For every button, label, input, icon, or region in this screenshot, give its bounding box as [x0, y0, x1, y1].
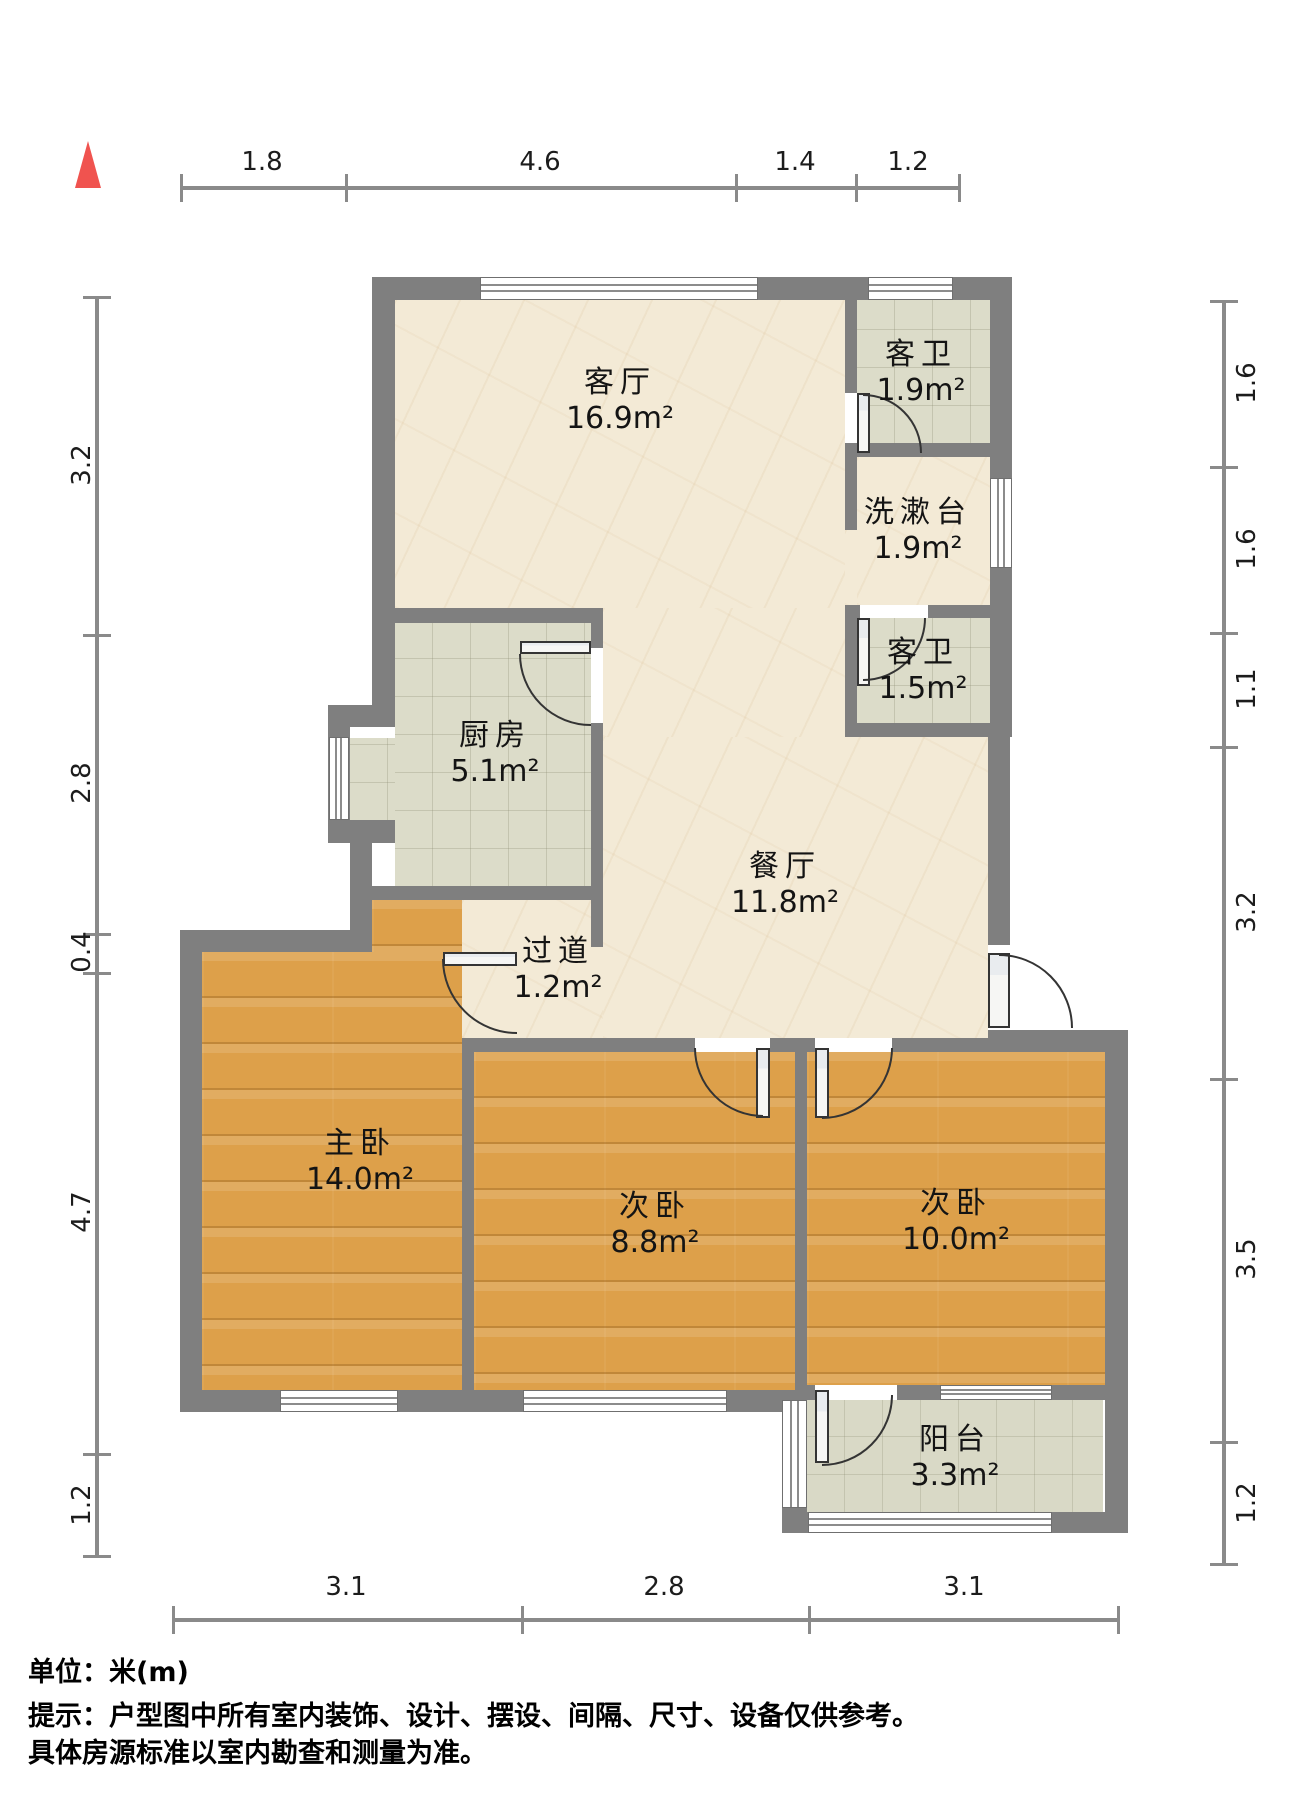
window-bath-top — [868, 277, 953, 300]
dim-tick — [958, 174, 961, 202]
dim-label-bottom: 3.1 — [311, 1572, 381, 1602]
room-area: 14.0m² — [250, 1163, 470, 1197]
dim-label-left: 4.7 — [67, 1177, 97, 1247]
room-area: 1.5m² — [813, 672, 1033, 706]
room-label-balcony: 阳台 3.3m² — [845, 1421, 1065, 1493]
wall-left-upper — [372, 277, 395, 727]
floor-dining-upper — [603, 608, 845, 737]
room-label-bath-mid: 客卫 1.5m² — [813, 634, 1033, 706]
wall-bath-mid-top-a — [845, 605, 860, 618]
dim-tick — [1210, 746, 1238, 749]
room-area: 8.8m² — [545, 1226, 765, 1260]
wall-bath-mid-bottom — [845, 723, 1012, 737]
room-label-bath-top: 客卫 1.9m² — [811, 336, 1031, 408]
dim-tick — [855, 174, 858, 202]
room-name: 阳台 — [845, 1421, 1065, 1459]
dim-label-left: 0.4 — [67, 917, 97, 987]
dim-tick — [83, 634, 111, 637]
room-name: 客厅 — [510, 364, 730, 402]
window-bed2-bottom — [523, 1390, 727, 1412]
dim-tick — [1210, 1563, 1238, 1566]
dim-label-left: 2.8 — [67, 748, 97, 818]
dim-tick — [83, 296, 111, 299]
window-kitchen-bay — [329, 737, 349, 820]
wall-kitchen-right-upper — [591, 608, 603, 648]
dim-tick — [1210, 466, 1238, 469]
dim-tick — [1117, 1606, 1120, 1634]
wall-left-mid — [350, 820, 372, 930]
window-living-top — [480, 277, 758, 300]
compass-north-icon — [75, 141, 101, 188]
dim-tick — [83, 1453, 111, 1456]
wall-kitchen-top — [372, 608, 603, 623]
wall-bed3-bottom-a — [807, 1385, 815, 1400]
room-area: 1.9m² — [808, 532, 1028, 566]
room-name: 洗漱台 — [808, 494, 1028, 532]
room-label-living: 客厅 16.9m² — [510, 364, 730, 436]
dim-tick — [808, 1606, 811, 1634]
dim-label-left: 3.2 — [67, 430, 97, 500]
dim-tick — [172, 1606, 175, 1634]
room-name: 次卧 — [545, 1188, 765, 1226]
room-name: 餐厅 — [675, 848, 895, 886]
door-leaf-balcony — [815, 1390, 829, 1463]
room-area: 3.3m² — [845, 1459, 1065, 1493]
dim-line-right — [1222, 300, 1226, 1565]
dim-tick — [1210, 1078, 1238, 1081]
dim-tick — [1210, 632, 1238, 635]
room-label-bed3: 次卧 10.0m² — [846, 1185, 1066, 1257]
dim-label-bottom: 2.8 — [629, 1572, 699, 1602]
room-name: 厨房 — [385, 717, 605, 755]
room-name: 过道 — [448, 933, 668, 971]
dim-tick — [345, 174, 348, 202]
wall-right-lower — [1105, 1030, 1128, 1533]
dim-label-right: 1.6 — [1232, 514, 1262, 584]
dim-label-top: 1.4 — [760, 147, 830, 177]
footer-note-line2: 具体房源标准以室内勘查和测量为准。 — [28, 1731, 487, 1770]
dim-label-right: 3.5 — [1232, 1224, 1262, 1294]
dim-label-top: 1.2 — [873, 147, 943, 177]
room-label-washstand: 洗漱台 1.9m² — [808, 494, 1028, 566]
door-leaf-kitchen — [520, 641, 591, 654]
floor-plan-canvas: 客厅 16.9m² 客卫 1.9m² 洗漱台 1.9m² 客卫 1.5m² 厨房… — [0, 0, 1316, 1813]
dim-label-top: 1.8 — [227, 147, 297, 177]
wall-left-lower — [180, 930, 202, 1412]
dim-label-left: 1.2 — [67, 1470, 97, 1540]
room-area: 1.9m² — [811, 374, 1031, 408]
room-area: 10.0m² — [846, 1223, 1066, 1257]
footer-note-line1: 提示：户型图中所有室内装饰、设计、摆设、间隔、尺寸、设备仅供参考。 — [28, 1694, 919, 1733]
room-name: 主卧 — [250, 1125, 470, 1163]
window-balcony-left — [782, 1400, 807, 1508]
wall-dining-right — [988, 737, 1010, 945]
wall-bed3-bottom-c — [1052, 1385, 1105, 1400]
room-label-kitchen: 厨房 5.1m² — [385, 717, 605, 789]
dim-tick — [180, 174, 183, 202]
wall-sep-master-bed2 — [462, 1038, 474, 1412]
window-balcony-bottom — [808, 1512, 1052, 1533]
dim-label-right: 1.6 — [1232, 348, 1262, 418]
room-name: 次卧 — [846, 1185, 1066, 1223]
room-area: 11.8m² — [675, 886, 895, 920]
door-leaf-bed2 — [756, 1048, 770, 1118]
room-area: 16.9m² — [510, 402, 730, 436]
window-bed3-balcony — [940, 1385, 1052, 1400]
dim-tick — [83, 1555, 111, 1558]
footer-unit-label: 单位：米(m) — [28, 1650, 189, 1689]
floor-living-room — [395, 300, 845, 608]
dim-line-top — [180, 186, 960, 190]
room-label-bed2: 次卧 8.8m² — [545, 1188, 765, 1260]
wall-bath-mid-top-b — [928, 605, 990, 618]
wall-bed3-bottom-b — [897, 1385, 940, 1400]
room-area: 5.1m² — [385, 755, 605, 789]
wall-bedrooms-top-a — [462, 1038, 695, 1052]
dim-label-right: 1.2 — [1232, 1468, 1262, 1538]
wall-bedrooms-top-c — [892, 1038, 988, 1052]
room-name: 客卫 — [811, 336, 1031, 374]
dim-tick — [1210, 1441, 1238, 1444]
dim-tick — [1210, 300, 1238, 303]
dim-label-bottom: 3.1 — [929, 1572, 999, 1602]
wall-kitchen-bottom — [350, 886, 603, 900]
wall-master-top — [180, 930, 372, 952]
room-area: 1.2m² — [448, 971, 668, 1005]
wall-sep-bed2-bed3 — [795, 1038, 807, 1400]
window-master-bottom — [280, 1390, 398, 1412]
room-label-dining: 餐厅 11.8m² — [675, 848, 895, 920]
dim-label-top: 4.6 — [505, 147, 575, 177]
room-label-master: 主卧 14.0m² — [250, 1125, 470, 1197]
room-name: 客卫 — [813, 634, 1033, 672]
dim-tick — [521, 1606, 524, 1634]
door-leaf-bed3 — [815, 1048, 829, 1118]
dim-line-bottom — [172, 1618, 1120, 1622]
dim-label-right: 1.1 — [1232, 654, 1262, 724]
dim-tick — [735, 174, 738, 202]
wall-bedrooms-top-b — [770, 1038, 815, 1052]
dim-label-right: 3.2 — [1232, 877, 1262, 947]
door-leaf-entrance — [988, 953, 1010, 1028]
room-label-corridor: 过道 1.2m² — [448, 933, 668, 1005]
